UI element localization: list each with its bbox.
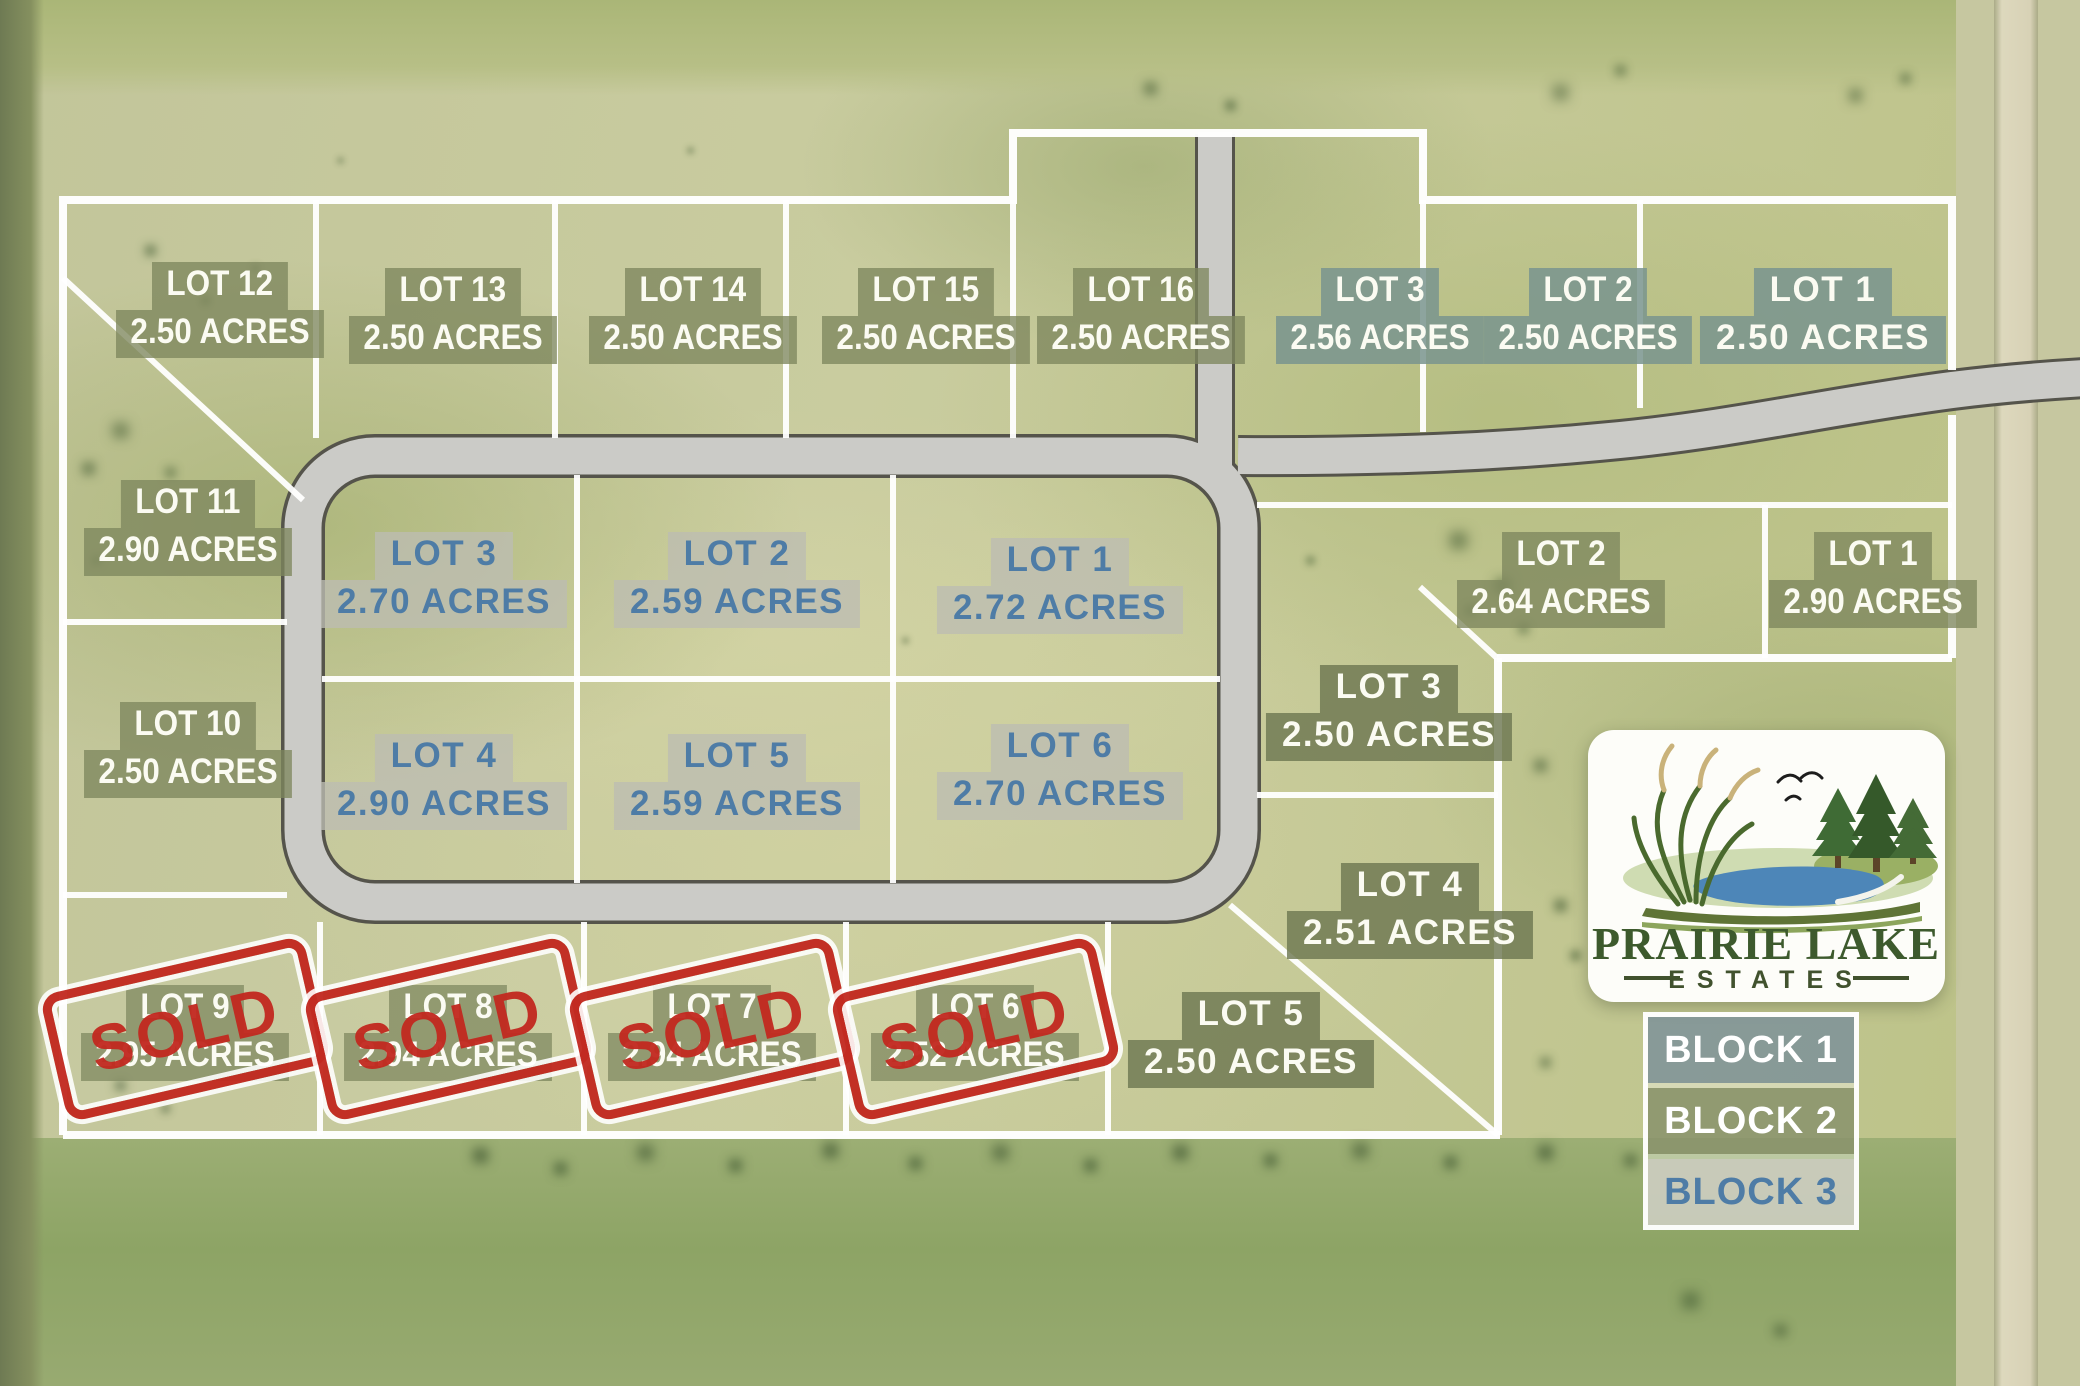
logo-reed-heads — [1661, 746, 1758, 798]
lot-acres: 2.51 ACRES — [1287, 911, 1533, 959]
legend-block-2: BLOCK 2 — [1648, 1088, 1854, 1154]
lot-acres: 2.50 ACRES — [822, 316, 1030, 364]
lot-name: LOT 4 — [1341, 863, 1480, 911]
lot-label: LOT 11 2.90 ACRES — [72, 480, 303, 576]
lot-label: LOT 1 2.90 ACRES — [1757, 532, 1988, 628]
lot-name: LOT 2 — [1502, 532, 1620, 580]
lot-acres: 2.50 ACRES — [1700, 316, 1946, 364]
lot-label: LOT 12 2.50 ACRES — [104, 262, 335, 358]
lot-name: LOT 1 — [991, 538, 1130, 586]
lot-label: LOT 16 2.50 ACRES — [1025, 268, 1256, 364]
logo-birds — [1778, 773, 1822, 800]
lot-name: LOT 12 — [152, 262, 288, 310]
lot-acres: 2.70 ACRES — [937, 772, 1183, 820]
lot-label: LOT 7 2.94 ACRES SOLD — [596, 985, 827, 1081]
lot-name: LOT 3 — [1321, 268, 1439, 316]
lot-name: LOT 14 — [625, 268, 761, 316]
logo-subtitle: ESTATES — [1668, 966, 1864, 994]
lot-name: LOT 10 — [120, 702, 256, 750]
lot-acres: 2.50 ACRES — [1037, 316, 1245, 364]
lot-label: LOT 2 2.64 ACRES — [1445, 532, 1676, 628]
lot-label: LOT 3 2.70 ACRES — [321, 532, 567, 628]
lot-label: LOT 8 2.94 ACRES SOLD — [332, 985, 563, 1081]
block-legend: BLOCK 1 BLOCK 2 BLOCK 3 — [1643, 1012, 1859, 1230]
lot-name: LOT 2 — [668, 532, 807, 580]
lot-label: LOT 2 2.59 ACRES — [614, 532, 860, 628]
lot-acres: 2.50 ACRES — [1128, 1040, 1374, 1088]
lot-acres: 2.59 ACRES — [614, 782, 860, 830]
lot-label: LOT 3 2.56 ACRES — [1264, 268, 1495, 364]
lot-name: LOT 6 — [991, 724, 1130, 772]
lot-label: LOT 5 2.59 ACRES — [614, 734, 860, 830]
plat-map: LOT 12 2.50 ACRES LOT 13 2.50 ACRES LOT … — [0, 0, 2080, 1386]
lot-name: LOT 4 — [375, 734, 514, 782]
lot-name: LOT 3 — [1320, 665, 1459, 713]
lot-label: LOT 9 2.95 ACRES SOLD — [69, 985, 300, 1081]
lot-acres: 2.50 ACRES — [116, 310, 324, 358]
lot-acres: 2.50 ACRES — [349, 316, 557, 364]
lot-label: LOT 6 2.70 ACRES — [937, 724, 1183, 820]
lot-label: LOT 1 2.72 ACRES — [937, 538, 1183, 634]
lot-name: LOT 2 — [1529, 268, 1647, 316]
lot-label: LOT 10 2.50 ACRES — [72, 702, 303, 798]
lot-label: LOT 15 2.50 ACRES — [810, 268, 1041, 364]
lot-name: LOT 16 — [1073, 268, 1209, 316]
lot-acres: 2.90 ACRES — [321, 782, 567, 830]
legend-block-3: BLOCK 3 — [1648, 1159, 1854, 1225]
lot-acres: 2.50 ACRES — [589, 316, 797, 364]
lot-acres: 2.64 ACRES — [1457, 580, 1665, 628]
lot-acres: 2.72 ACRES — [937, 586, 1183, 634]
lot-acres: 2.56 ACRES — [1276, 316, 1484, 364]
lot-label: LOT 3 2.50 ACRES — [1266, 665, 1512, 761]
lot-acres: 2.70 ACRES — [321, 580, 567, 628]
lot-label: LOT 4 2.90 ACRES — [321, 734, 567, 830]
lot-label: LOT 13 2.50 ACRES — [337, 268, 568, 364]
lot-label: LOT 5 2.50 ACRES — [1128, 992, 1374, 1088]
logo-card: PRAIRIE LAKE ESTATES — [1588, 730, 1945, 1002]
lot-acres: 2.59 ACRES — [614, 580, 860, 628]
logo-title: PRAIRIE LAKE — [1592, 918, 1940, 969]
lot-acres: 2.50 ACRES — [1266, 713, 1512, 761]
legend-block-1: BLOCK 1 — [1648, 1017, 1854, 1083]
prairie-lake-logo: PRAIRIE LAKE ESTATES — [1588, 730, 1945, 1002]
lot-name: LOT 11 — [121, 480, 255, 528]
lot-acres: 2.90 ACRES — [1769, 580, 1977, 628]
lot-label: LOT 6 2.52 ACRES SOLD — [859, 985, 1090, 1081]
lot-acres: 2.50 ACRES — [1484, 316, 1692, 364]
lot-name: LOT 5 — [668, 734, 807, 782]
lot-name: LOT 1 — [1814, 532, 1932, 580]
lot-name: LOT 5 — [1182, 992, 1321, 1040]
lot-name: LOT 3 — [375, 532, 514, 580]
lot-name: LOT 13 — [385, 268, 521, 316]
lot-label: LOT 4 2.51 ACRES — [1287, 863, 1533, 959]
lot-name: LOT 1 — [1754, 268, 1893, 316]
lot-acres: 2.50 ACRES — [84, 750, 292, 798]
lot-label: LOT 2 2.50 ACRES — [1472, 268, 1703, 364]
lot-label: LOT 14 2.50 ACRES — [577, 268, 808, 364]
lot-acres: 2.90 ACRES — [84, 528, 292, 576]
lot-label: LOT 1 2.50 ACRES — [1700, 268, 1946, 364]
lot-name: LOT 15 — [858, 268, 994, 316]
